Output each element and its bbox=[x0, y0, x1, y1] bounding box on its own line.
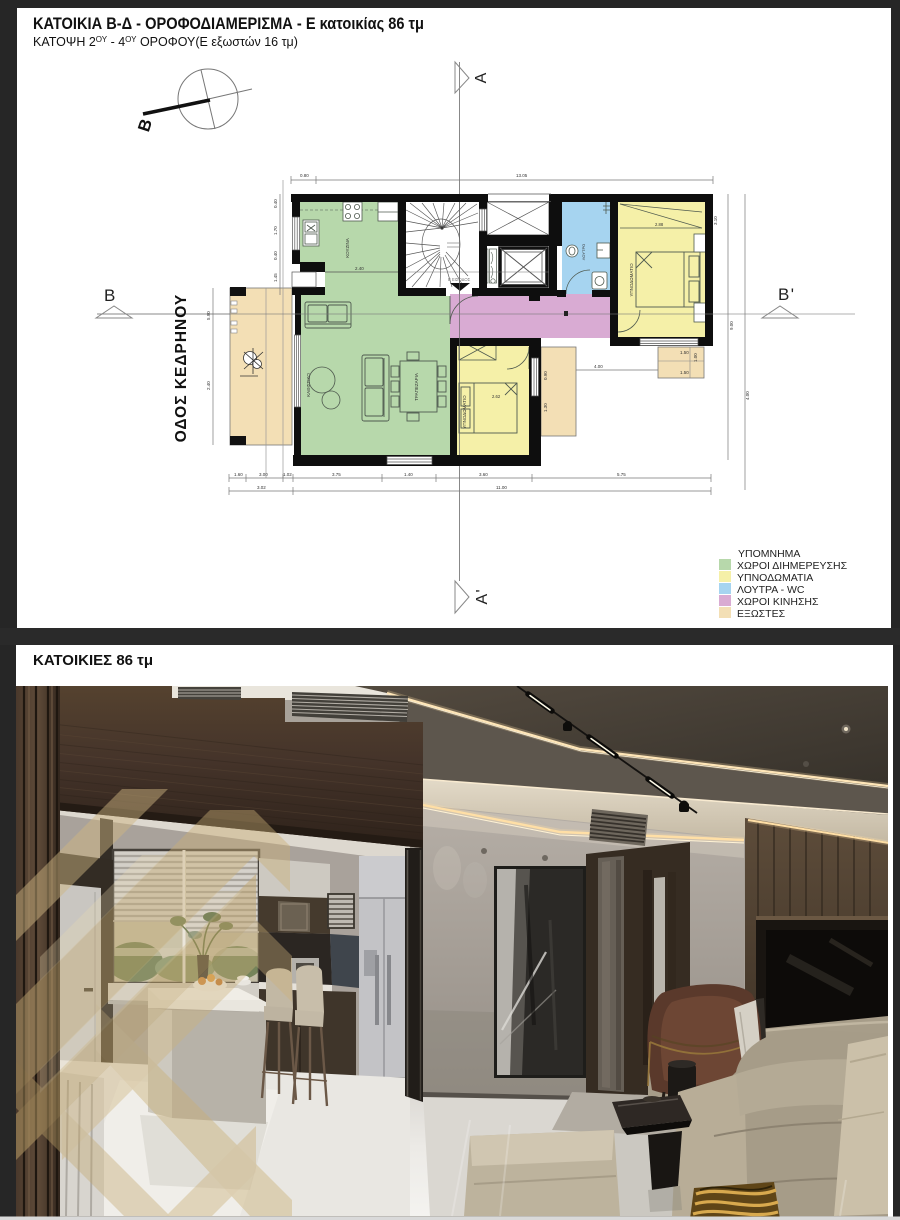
svg-text:ΥΠΝΟΔΩΜΑΤΙΟ: ΥΠΝΟΔΩΜΑΤΙΟ bbox=[629, 263, 634, 297]
svg-text:ΛΟΥΤΡΑ - WC: ΛΟΥΤΡΑ - WC bbox=[737, 584, 805, 596]
svg-text:9.00: 9.00 bbox=[729, 321, 734, 330]
svg-text:1.60: 1.60 bbox=[234, 472, 243, 477]
svg-text:ΚΑΤΟΙΚΙΑ Β-Δ - ΟΡΟΦΟΔΙΑΜΕΡΙΣΜΑ: ΚΑΤΟΙΚΙΑ Β-Δ - ΟΡΟΦΟΔΙΑΜΕΡΙΣΜΑ - Ε κατοι… bbox=[33, 14, 424, 33]
svg-text:ΟΔΟΣ ΚΕΔΡΗΝΟΥ: ΟΔΟΣ ΚΕΔΡΗΝΟΥ bbox=[173, 294, 190, 442]
svg-text:2.62: 2.62 bbox=[492, 394, 501, 399]
svg-text:ΚΑΘΙΣΤΙΚΟ: ΚΑΘΙΣΤΙΚΟ bbox=[306, 373, 311, 397]
svg-text:1.45: 1.45 bbox=[273, 273, 278, 282]
svg-text:1.50: 1.50 bbox=[680, 370, 689, 375]
svg-text:11.00: 11.00 bbox=[496, 485, 507, 490]
svg-text:0.80: 0.80 bbox=[300, 173, 309, 178]
svg-text:ΚΟΥΖΙΝΑ: ΚΟΥΖΙΝΑ bbox=[345, 238, 350, 257]
svg-text:3.00: 3.00 bbox=[259, 472, 268, 477]
svg-text:2.88: 2.88 bbox=[655, 222, 664, 227]
svg-text:2.40: 2.40 bbox=[206, 381, 211, 390]
svg-text:ΥΠΟΜΝΗΜΑ: ΥΠΟΜΝΗΜΑ bbox=[738, 548, 800, 560]
svg-text:ΛΟΥΤΡΟ: ΛΟΥΤΡΟ bbox=[581, 244, 586, 260]
svg-text:0.90: 0.90 bbox=[543, 371, 548, 380]
svg-text:3.75: 3.75 bbox=[332, 472, 341, 477]
svg-text:1.30: 1.30 bbox=[543, 403, 548, 412]
svg-text:1.70: 1.70 bbox=[273, 226, 278, 235]
svg-text:4.00: 4.00 bbox=[745, 391, 750, 400]
svg-text:A: A bbox=[473, 72, 490, 83]
svg-text:B: B bbox=[104, 286, 115, 305]
svg-text:ΥΠΝΟΔΩΜΑΤΙΑ: ΥΠΝΟΔΩΜΑΤΙΑ bbox=[737, 572, 813, 584]
svg-text:ΚΑΤΟΙΚΙΕΣ 86 τμ: ΚΑΤΟΙΚΙΕΣ 86 τμ bbox=[33, 652, 153, 669]
svg-text:4.00: 4.00 bbox=[594, 364, 603, 369]
svg-text:3.10: 3.10 bbox=[713, 216, 718, 225]
svg-text:3.02: 3.02 bbox=[257, 485, 266, 490]
svg-text:ΧΩΡΟΙ ΔΙΗΜΕΡΕΥΣΗΣ: ΧΩΡΟΙ ΔΙΗΜΕΡΕΥΣΗΣ bbox=[737, 560, 848, 572]
svg-text:0.40: 0.40 bbox=[273, 251, 278, 260]
svg-text:5.90: 5.90 bbox=[206, 311, 211, 320]
svg-text:ΚΑΤΟΨΗ 2ΟΥ - 4ΟΥ ΟΡΟΦΟΥ(Ε εξωσ: ΚΑΤΟΨΗ 2ΟΥ - 4ΟΥ ΟΡΟΦΟΥ(Ε εξωστών 16 τμ) bbox=[33, 35, 298, 49]
svg-text:ΥΠΝΟΔΩΜΑΤΙΟ: ΥΠΝΟΔΩΜΑΤΙΟ bbox=[462, 395, 467, 429]
svg-text:ΕΞΩΣΤΕΣ: ΕΞΩΣΤΕΣ bbox=[737, 608, 786, 620]
svg-text:1.50: 1.50 bbox=[680, 350, 689, 355]
svg-text:1.02: 1.02 bbox=[283, 472, 292, 477]
svg-text:0.40: 0.40 bbox=[273, 199, 278, 208]
svg-text:5.75: 5.75 bbox=[617, 472, 626, 477]
svg-text:ΤΡΑΠΕΖΑΡΙΑ: ΤΡΑΠΕΖΑΡΙΑ bbox=[414, 373, 419, 401]
svg-text:B ': B ' bbox=[778, 285, 794, 304]
svg-text:ΧΩΡΟΙ ΚΙΝΗΣΗΣ: ΧΩΡΟΙ ΚΙΝΗΣΗΣ bbox=[737, 596, 819, 608]
svg-text:2.40: 2.40 bbox=[355, 266, 364, 271]
svg-text:A ': A ' bbox=[474, 589, 491, 604]
svg-text:1.00: 1.00 bbox=[693, 353, 698, 362]
svg-text:13.05: 13.05 bbox=[516, 173, 528, 178]
svg-text:1.40: 1.40 bbox=[404, 472, 413, 477]
svg-text:3.60: 3.60 bbox=[479, 472, 488, 477]
